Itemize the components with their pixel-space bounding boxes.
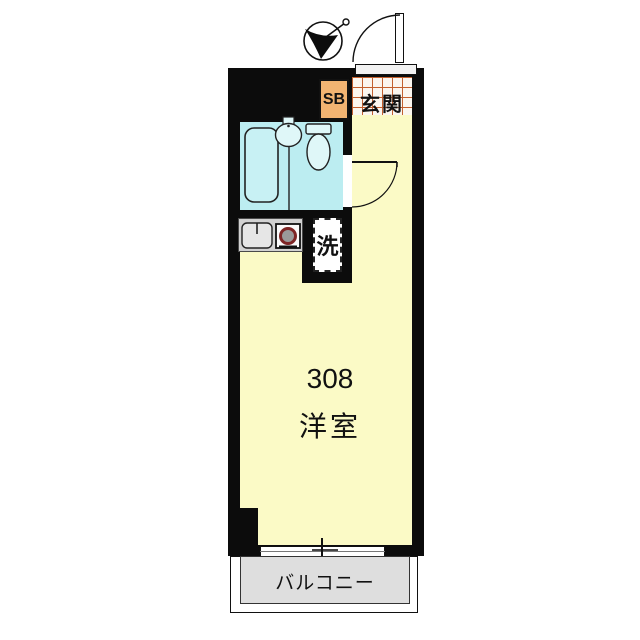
- shoe-box: SB: [319, 79, 349, 120]
- balcony-label: バルコニー: [240, 568, 410, 595]
- floor-plan: 洗 SB 玄関 308 洋室 バルコニー: [0, 0, 640, 640]
- wall-pillar-bottom-left: [228, 508, 258, 553]
- kitchen-counter: [238, 218, 303, 252]
- room-name-label: 洋室: [250, 405, 410, 445]
- entrance-door-arc: [350, 10, 410, 70]
- wall-below-laundry: [302, 272, 352, 283]
- sliding-window-sash-line: [312, 549, 338, 551]
- stove-burner: [281, 229, 296, 244]
- bathtub: [245, 128, 278, 202]
- shoe-box-label: SB: [323, 91, 345, 109]
- interior-door: [345, 155, 405, 215]
- entrance-label: 玄関: [352, 88, 412, 117]
- bathroom-fixtures: [240, 115, 343, 210]
- toilet: [307, 134, 330, 170]
- sink-drain-dot: [287, 125, 290, 128]
- north-arrow-icon: [300, 16, 356, 68]
- room-number: 308: [250, 363, 410, 395]
- toilet-tank: [306, 124, 331, 134]
- laundry-space: 洗: [313, 218, 342, 272]
- laundry-label: 洗: [316, 229, 338, 261]
